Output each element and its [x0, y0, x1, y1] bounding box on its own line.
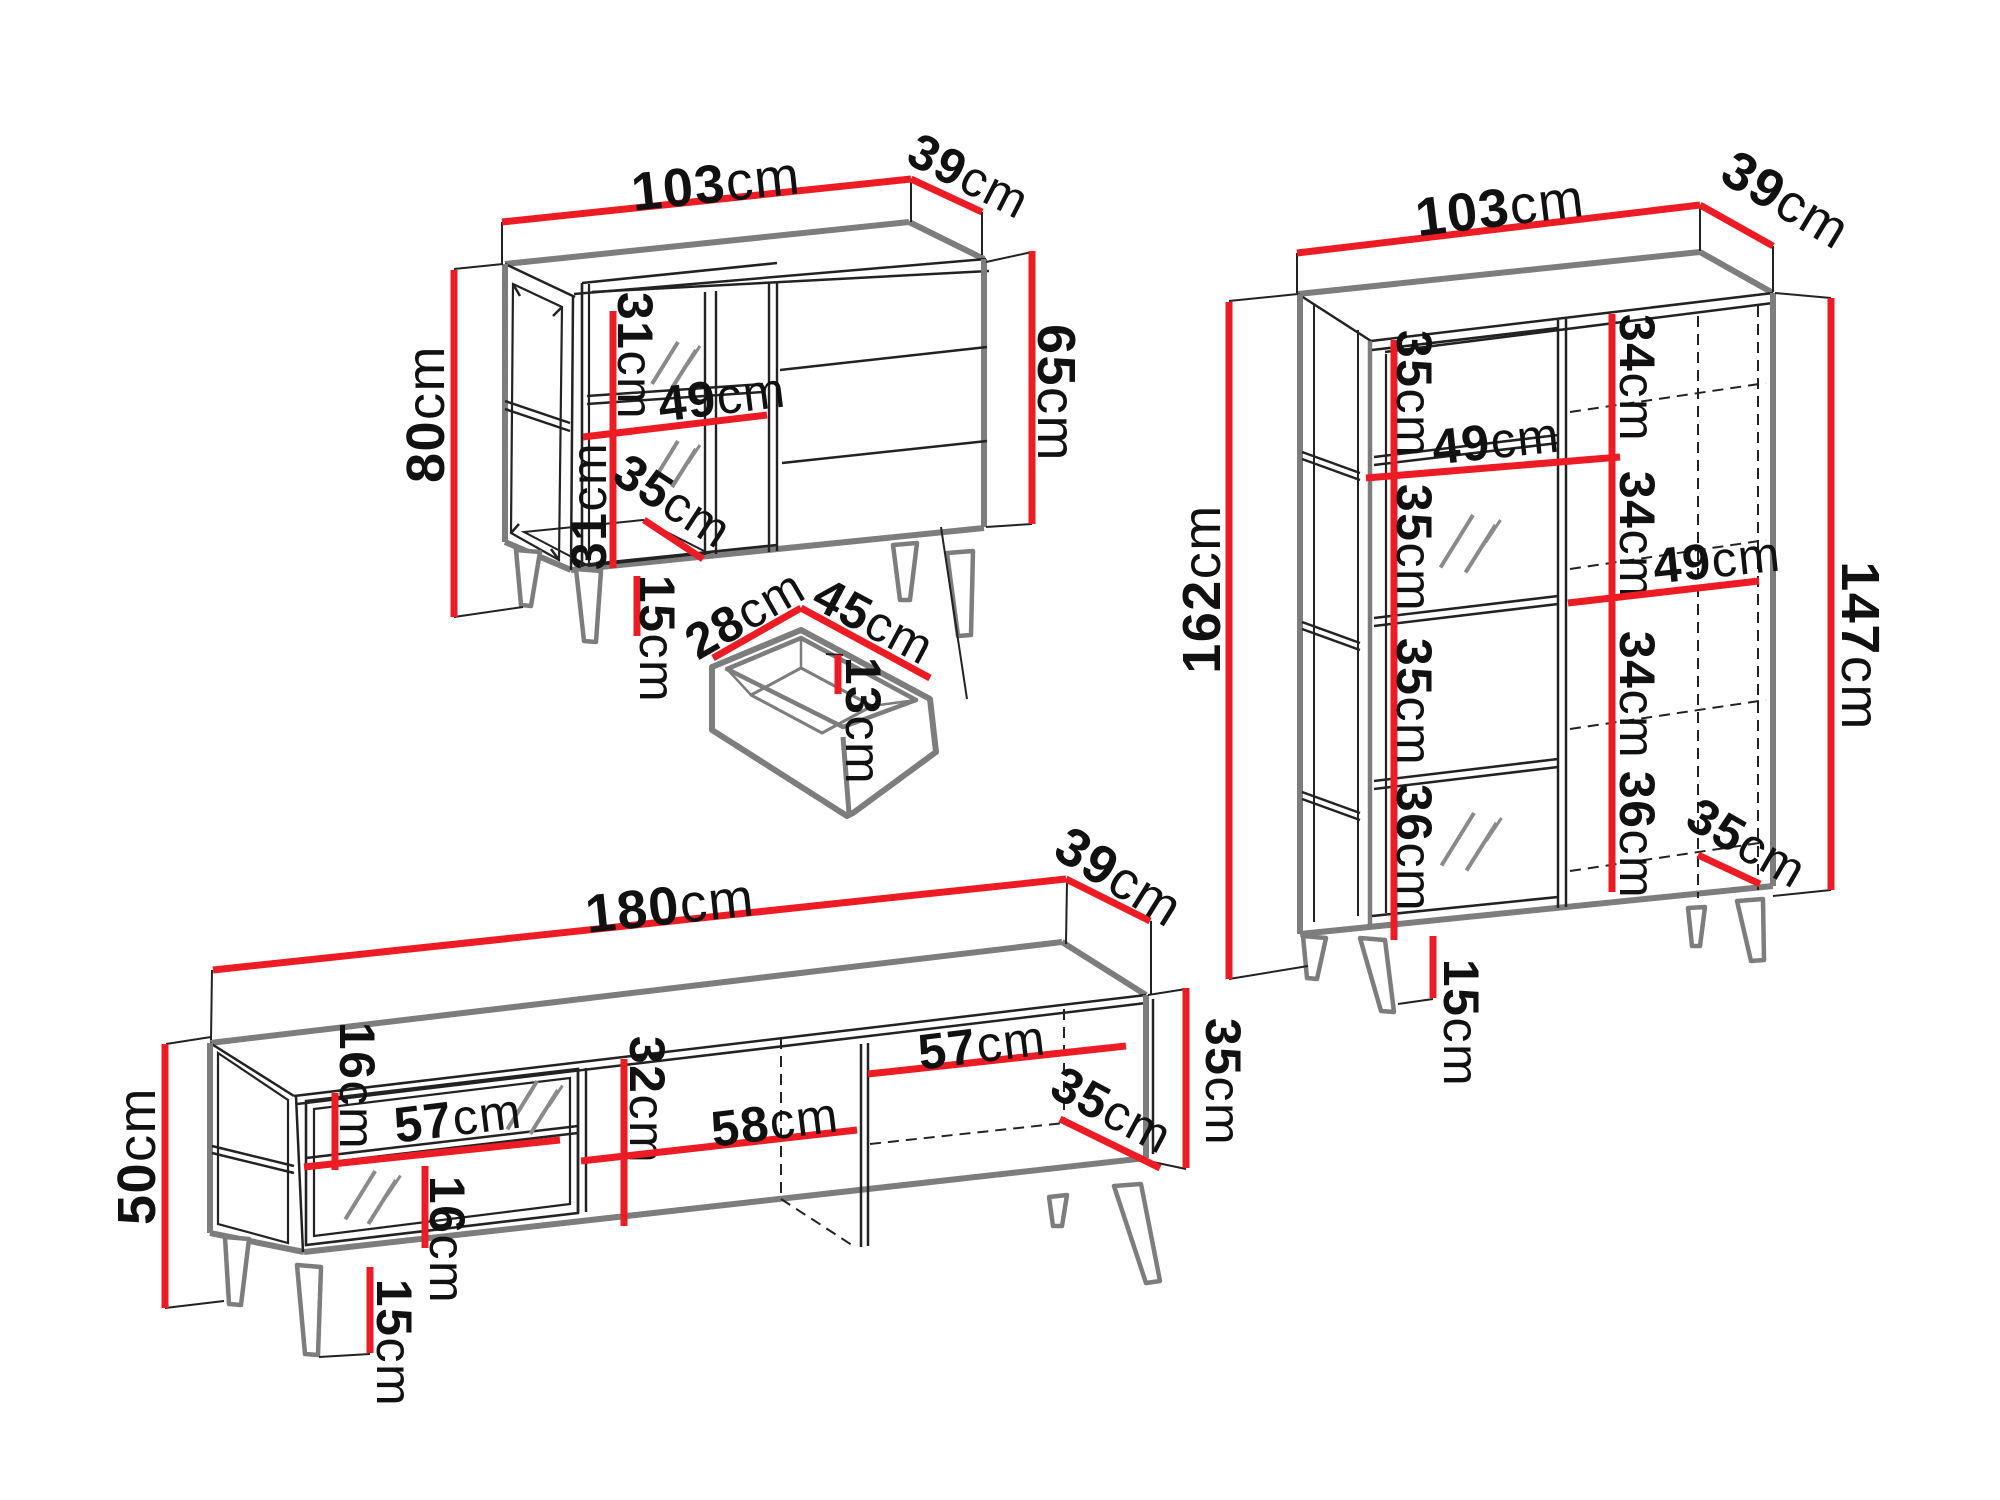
svg-text:80cm: 80cm	[396, 345, 456, 483]
svg-text:31cm: 31cm	[607, 292, 663, 420]
svg-text:15cm: 15cm	[366, 1279, 422, 1407]
svg-text:147cm: 147cm	[1830, 561, 1890, 731]
svg-text:15cm: 15cm	[1433, 959, 1489, 1087]
svg-text:35cm: 35cm	[1386, 638, 1442, 766]
svg-text:35cm: 35cm	[1386, 484, 1442, 612]
svg-text:34cm: 34cm	[1609, 631, 1665, 759]
svg-text:35cm: 35cm	[1195, 1018, 1251, 1146]
svg-text:36cm: 36cm	[1386, 784, 1442, 912]
svg-text:34cm: 34cm	[1609, 314, 1665, 442]
svg-text:16cm: 16cm	[419, 1176, 475, 1304]
svg-text:162cm: 162cm	[1172, 504, 1232, 674]
svg-text:16cm: 16cm	[329, 1022, 385, 1150]
svg-text:65cm: 65cm	[1026, 324, 1086, 462]
svg-text:36cm: 36cm	[1609, 771, 1665, 899]
svg-text:13cm: 13cm	[835, 657, 891, 785]
svg-text:50cm: 50cm	[107, 1087, 167, 1225]
svg-text:15cm: 15cm	[629, 575, 685, 703]
svg-text:31cm: 31cm	[561, 442, 617, 570]
svg-text:32cm: 32cm	[619, 1036, 675, 1164]
